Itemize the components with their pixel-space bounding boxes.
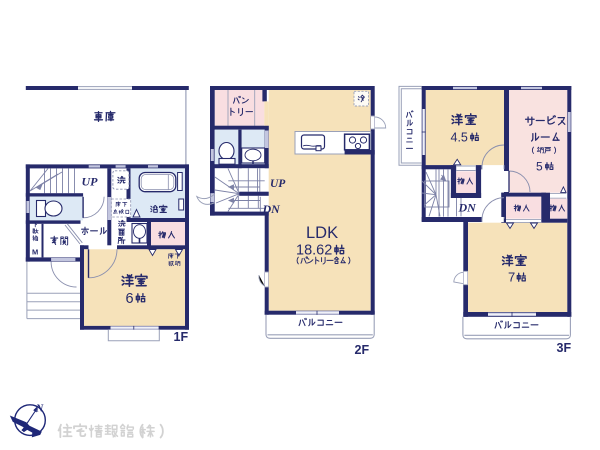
svg-text:5: 5 [536,160,543,174]
svg-text:7: 7 [508,270,515,285]
svg-text:4.5: 4.5 [451,131,468,145]
svg-text:N: N [35,404,44,415]
svg-text:6: 6 [126,291,134,307]
svg-text:UP: UP [270,178,286,190]
svg-text:1F: 1F [174,330,189,344]
svg-text:UP: UP [82,175,99,189]
svg-text:DN: DN [458,201,478,215]
svg-text:LDK: LDK [306,224,338,242]
svg-text:3F: 3F [557,341,572,355]
svg-text:2F: 2F [355,343,370,357]
svg-text:M: M [32,248,38,257]
svg-text:18.62: 18.62 [296,243,332,259]
